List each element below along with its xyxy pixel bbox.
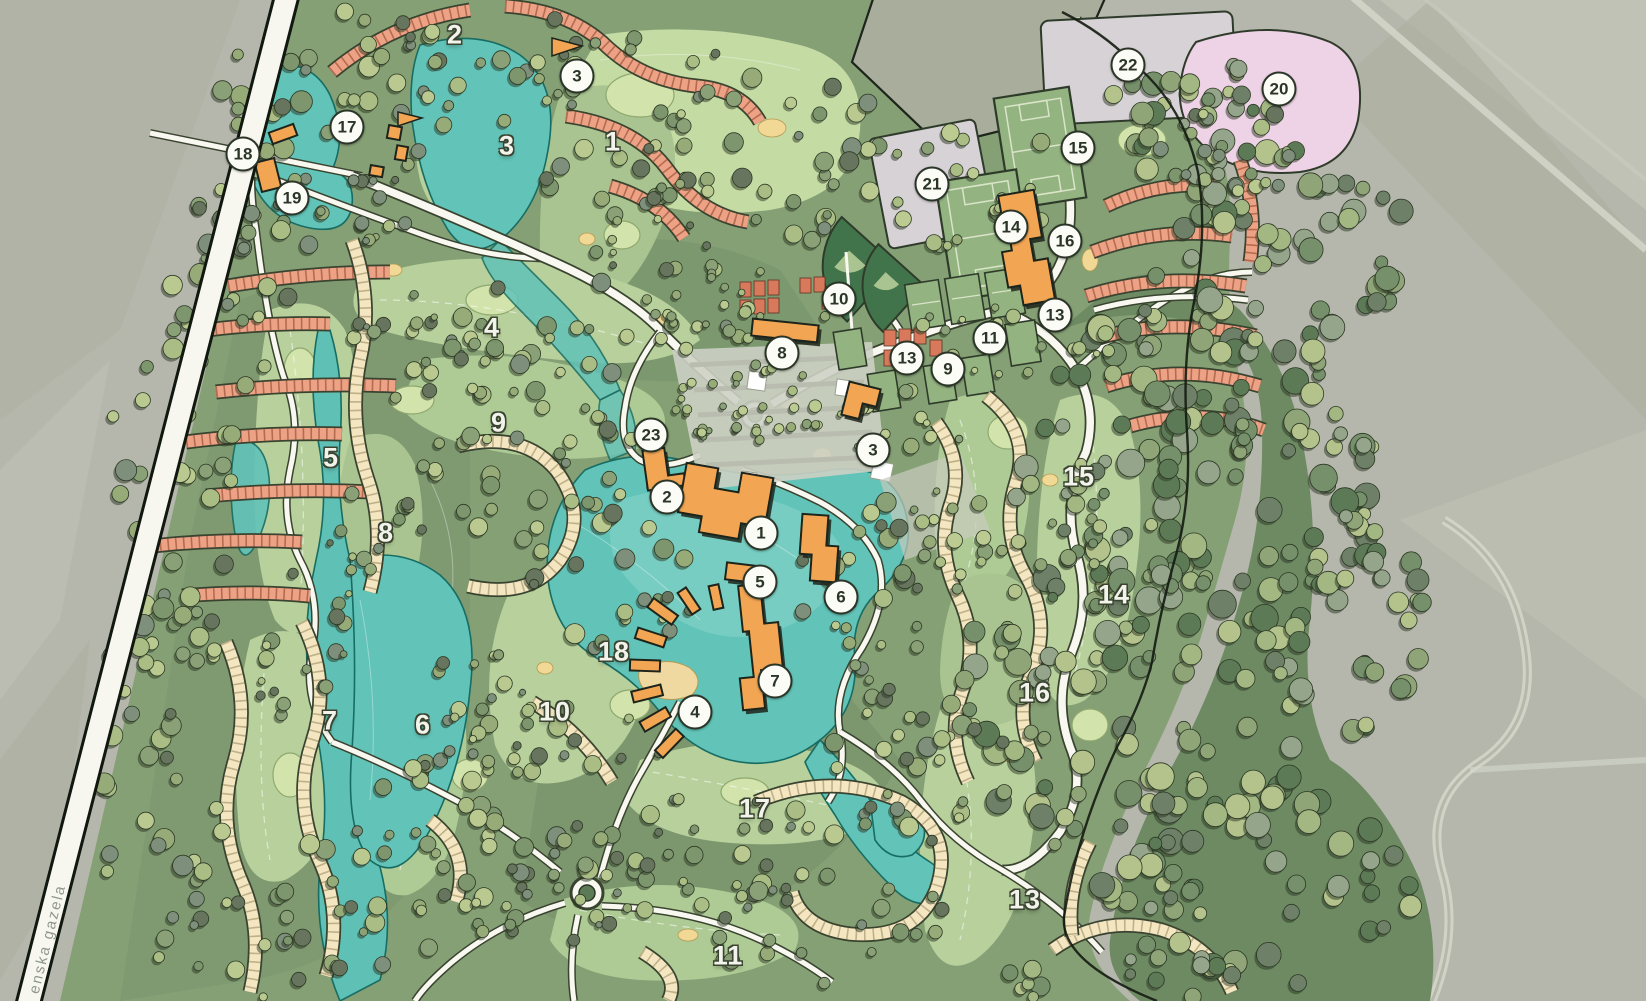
hole-number-1: 1: [605, 127, 621, 158]
hole-number-16: 16: [1019, 678, 1051, 709]
hole-number-10: 10: [539, 697, 571, 728]
hole-number-3: 3: [499, 131, 515, 162]
hole-number-13: 13: [1009, 885, 1041, 916]
marker-circled-4: 4: [678, 695, 713, 730]
hole-number-14: 14: [1098, 580, 1130, 611]
marker-circled-5: 5: [743, 565, 778, 600]
hole-number-11: 11: [713, 941, 744, 972]
marker-circled-17: 17: [330, 110, 365, 145]
marker-circled-8: 8: [765, 336, 800, 371]
marker-circled-3: 3: [560, 59, 595, 94]
hole-number-18: 18: [598, 637, 630, 668]
marker-circled-20: 20: [1262, 72, 1297, 107]
master-plan-map: 3 17 18 19 22 20 21 15 14 16 10 13 11 13…: [0, 0, 1646, 1001]
marker-circled-11: 11: [973, 321, 1008, 356]
marker-circled-13b: 13: [890, 341, 925, 376]
marker-circled-22: 22: [1111, 48, 1146, 83]
hole-number-2: 2: [447, 20, 463, 51]
hole-number-9: 9: [491, 408, 507, 439]
hole-number-6: 6: [415, 710, 431, 741]
marker-circled-19: 19: [275, 181, 310, 216]
marker-circled-3b: 3: [856, 433, 891, 468]
hole-number-15: 15: [1063, 462, 1095, 493]
marker-circled-16: 16: [1048, 224, 1083, 259]
marker-circled-6: 6: [824, 580, 859, 615]
marker-circled-10: 10: [822, 282, 857, 317]
marker-circled-15: 15: [1061, 131, 1096, 166]
marker-circled-21: 21: [915, 167, 950, 202]
hole-number-17: 17: [739, 794, 771, 825]
hole-number-4: 4: [484, 313, 500, 344]
marker-circled-7: 7: [758, 664, 793, 699]
marker-circled-13: 13: [1038, 298, 1073, 333]
marker-circled-18: 18: [226, 137, 261, 172]
marker-circled-14: 14: [994, 210, 1029, 245]
hole-number-7: 7: [322, 706, 338, 737]
marker-circled-9: 9: [931, 352, 966, 387]
marker-circled-1: 1: [744, 516, 779, 551]
marker-circled-23: 23: [634, 418, 669, 453]
hole-number-8: 8: [378, 518, 394, 549]
hole-number-5: 5: [323, 443, 339, 474]
marker-circled-2: 2: [650, 480, 685, 515]
